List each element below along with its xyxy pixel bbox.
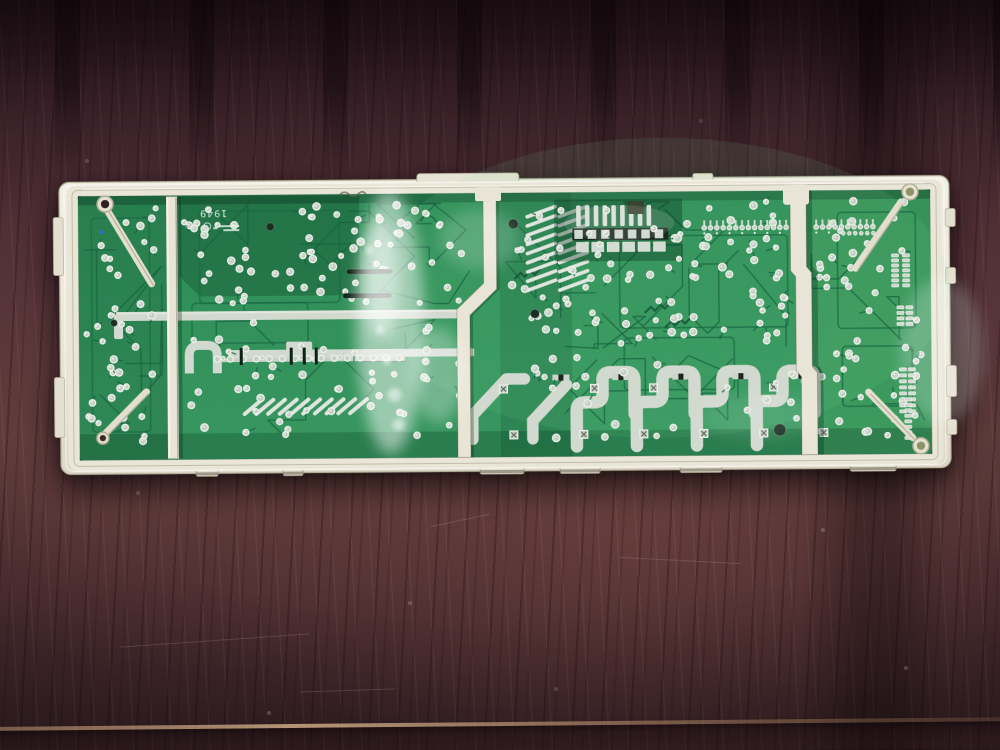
pcb-graphic	[59, 176, 951, 475]
silkscreen-text: 1949	[199, 207, 227, 218]
pcb-assembly: 1949	[59, 176, 951, 475]
smd-component-block	[554, 199, 682, 262]
photo-circuit-board-on-table: 1949	[0, 0, 1000, 750]
logo-ring-icon	[203, 222, 211, 230]
dust-specks	[0, 0, 2, 2]
silkscreen-logo-marks	[201, 222, 241, 231]
